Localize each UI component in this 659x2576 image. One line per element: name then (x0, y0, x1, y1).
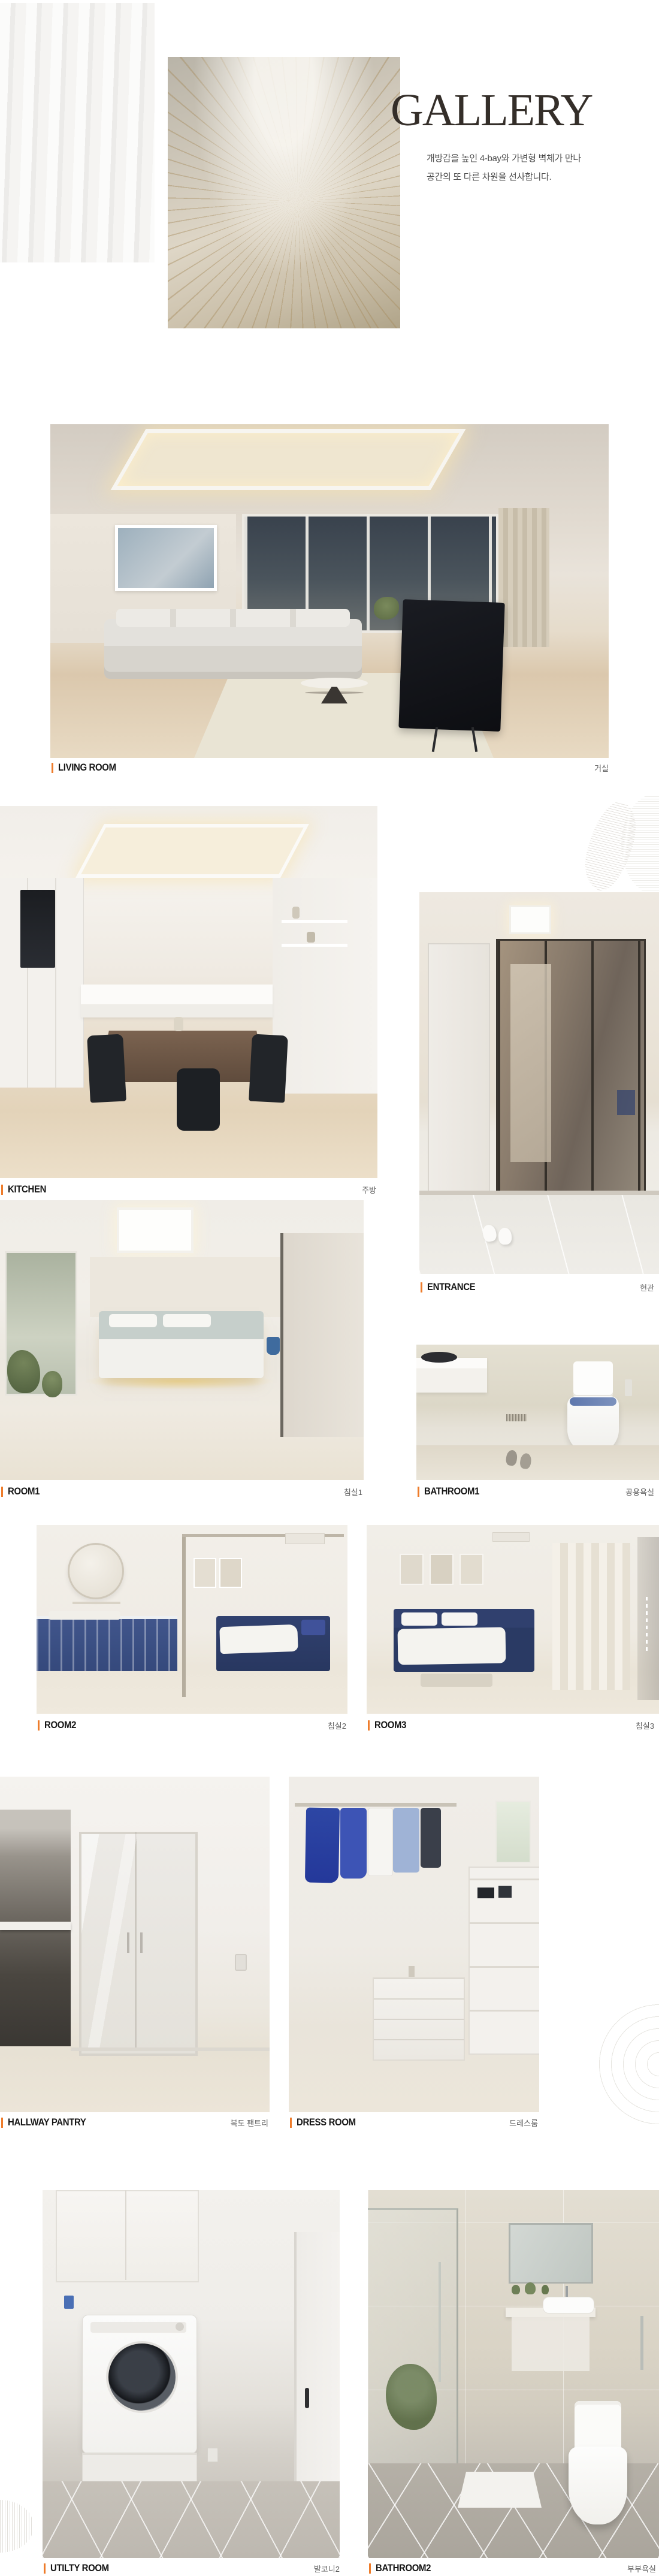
accessory-box2 (498, 1886, 512, 1898)
wall-shelf (72, 1602, 120, 1604)
recessed-ceiling-light (75, 824, 309, 878)
section-title-en: HALLWAY PANTRY (8, 2116, 86, 2128)
blue-wainscot (37, 1616, 177, 1671)
section-label-bathroom2: BATHROOM2 부부욕실 (369, 2562, 656, 2574)
section-title-en: DRESS ROOM (297, 2116, 356, 2128)
sink-basin (543, 2297, 594, 2314)
door-frame (294, 2232, 340, 2511)
recessed-ceiling-light (111, 429, 466, 490)
shelf-vase2 (307, 932, 315, 943)
hero-curtain-photo (0, 3, 155, 262)
table-vase (174, 1017, 183, 1031)
art-frame (115, 525, 217, 591)
photo-living-room[interactable] (50, 424, 609, 758)
cabinet-handle (127, 1932, 129, 1953)
threshold (419, 1191, 659, 1195)
light-switch (235, 1954, 247, 1971)
washer-knob (176, 2323, 184, 2331)
drain-grille (506, 1414, 527, 1421)
dining-chair-front (177, 1068, 220, 1131)
section-title-kr: 침실1 (344, 1486, 362, 1497)
leaf-shape (584, 797, 642, 895)
section-label-bathroom1: BATHROOM1 공용욕실 (418, 1485, 654, 1497)
perfume-bottle (409, 1966, 415, 1977)
toilet-bowl (569, 2447, 627, 2524)
sofa (104, 619, 362, 679)
blue-stool (267, 1337, 280, 1355)
ceiling-vent (492, 1532, 530, 1542)
section-label-entrance: ENTRANCE 현관 (421, 1281, 654, 1293)
label-accent-bar (421, 1282, 422, 1292)
shelf-plant (512, 2285, 520, 2294)
cabinet-divider (125, 2190, 126, 2280)
art-frame (194, 1558, 216, 1588)
section-label-room1: ROOM1 침실1 (1, 1485, 362, 1497)
label-accent-bar (1, 1185, 3, 1195)
curtain (552, 1543, 630, 1690)
photo-room2[interactable] (37, 1525, 347, 1714)
label-accent-bar (369, 2563, 371, 2574)
vanity-cabinet (512, 2317, 590, 2371)
curtain (498, 508, 549, 647)
washer-pedestal (82, 2453, 197, 2483)
bidet-remote (625, 1379, 632, 1396)
section-title-kr: 침실2 (328, 1720, 346, 1731)
label-accent-bar (1, 2118, 3, 2128)
photo-utility-room[interactable] (43, 2190, 340, 2558)
dark-garment (421, 1808, 441, 1868)
section-label-kitchen: KITCHEN 주방 (1, 1183, 376, 1195)
section-title-en: ROOM2 (44, 1719, 76, 1731)
photo-entrance[interactable] (419, 892, 659, 1274)
light-blue-shirt (393, 1808, 419, 1873)
bath-mat (458, 2472, 542, 2508)
section-title-en: ROOM3 (374, 1719, 406, 1731)
towel-bar (640, 2316, 643, 2370)
wall-shelf (282, 920, 347, 923)
floor (416, 1445, 659, 1480)
tile-floor (43, 2481, 340, 2558)
mirror-reflection-door (510, 964, 551, 1162)
gallery-page: { "accent_color": "#ee7c2b", "header": {… (0, 0, 659, 2576)
section-label-living-room: LIVING ROOM 거실 (52, 762, 609, 774)
recessed-ceiling-light (117, 1207, 194, 1253)
toilet-lid-blue-accent (570, 1397, 616, 1406)
clothes-rail (295, 1803, 457, 1807)
pillow2 (163, 1314, 211, 1327)
section-title-kr: 현관 (640, 1282, 654, 1293)
pillow2 (442, 1612, 477, 1626)
shower-bar (439, 2262, 441, 2382)
washer-door (106, 2341, 178, 2413)
photo-dress-room[interactable] (289, 1777, 539, 2112)
glass-frame-vertical (182, 1534, 186, 1697)
section-title-kr: 침실3 (636, 1720, 654, 1731)
tile-floor (419, 1195, 659, 1274)
blue-pillow (301, 1620, 325, 1635)
photo-room3[interactable] (367, 1525, 659, 1714)
label-accent-bar (290, 2118, 292, 2128)
section-title-kr: 복도 팬트리 (231, 2117, 268, 2128)
pillow (109, 1314, 157, 1327)
window (495, 1801, 531, 1863)
section-title-en: BATHROOM2 (376, 2562, 431, 2574)
leaf-shape2 (621, 796, 659, 895)
art-frame2 (219, 1558, 242, 1588)
deco-striped-leaves (584, 796, 659, 895)
aircon-vent (285, 1533, 325, 1544)
toilet-tank (573, 1361, 613, 1397)
white-duvet (219, 1624, 298, 1654)
glass-sheen (81, 1834, 191, 2049)
toilet-tank (575, 2401, 621, 2449)
white-duvet (397, 1627, 506, 1665)
mirror-reflection-bed (617, 1090, 635, 1115)
section-title-en: KITCHEN (8, 1183, 46, 1195)
art-frame (400, 1554, 424, 1585)
section-title-en: BATHROOM1 (424, 1485, 479, 1497)
hero-dandelion-photo (168, 57, 400, 328)
section-title-kr: 부부욕실 (627, 2563, 656, 2574)
upper-cabinet (56, 2190, 199, 2282)
ceiling-downlight (509, 905, 551, 934)
photo-bathroom2[interactable] (368, 2190, 659, 2558)
section-title-en: ROOM1 (8, 1485, 40, 1497)
blue-jacket (305, 1808, 340, 1883)
dining-chair-left (87, 1034, 126, 1103)
built-in-fridge (20, 890, 55, 968)
plant2 (42, 1371, 62, 1397)
label-accent-bar (368, 1720, 370, 1731)
glass-wall (637, 1537, 659, 1700)
section-label-dress-room: DRESS ROOM 드레스룸 (290, 2116, 538, 2128)
door-handle (305, 2388, 309, 2408)
deco-vertical-stripes (0, 2500, 33, 2553)
entry-door (428, 943, 490, 1203)
shelf-plant3 (542, 2285, 549, 2294)
section-label-utility-room: UTILTY ROOM 발코니2 (44, 2562, 340, 2574)
headboard-wall (90, 1257, 288, 1317)
label-accent-bar (44, 2563, 46, 2574)
shelf-plant2 (525, 2282, 536, 2294)
photo-hallway-pantry[interactable] (0, 1777, 270, 2112)
section-title-kr: 공용욕실 (625, 1486, 654, 1497)
section-title-kr: 발코니2 (314, 2563, 340, 2574)
pillow (401, 1612, 437, 1626)
photo-kitchen[interactable] (0, 806, 377, 1178)
island-counter (81, 985, 273, 1017)
circle-rings (590, 1995, 659, 2133)
sofa-cushions (116, 609, 350, 627)
art-frame3 (460, 1554, 483, 1585)
washer-control-panel (90, 2322, 186, 2333)
dining-chair-right (249, 1034, 288, 1103)
baseboard (71, 2047, 270, 2051)
art-frame2 (430, 1554, 454, 1585)
section-title-en: ENTRANCE (427, 1281, 475, 1293)
foot-bench (421, 1674, 492, 1687)
round-mirror (68, 1543, 124, 1599)
white-shirt (368, 1808, 393, 1876)
mirror (509, 2223, 593, 2284)
vertical-glass-lettering (646, 1596, 648, 1651)
faucet (566, 2286, 568, 2298)
shelf-vase (292, 907, 300, 919)
counter-edge (0, 1922, 71, 1930)
glass-partition (280, 1233, 364, 1437)
tv-screen (398, 599, 504, 732)
vanity-counter (416, 1358, 487, 1393)
page-title: GALLERY (391, 87, 592, 133)
deco-concentric-circles (590, 1995, 659, 2133)
island-drawers (373, 1977, 465, 2061)
section-title-kr: 거실 (594, 762, 609, 774)
section-title-en: UTILTY ROOM (50, 2562, 109, 2574)
section-label-room3: ROOM3 침실3 (368, 1719, 654, 1731)
section-label-room2: ROOM2 침실2 (38, 1719, 346, 1731)
section-title-en: LIVING ROOM (58, 762, 116, 774)
bench-cushion (49, 1611, 120, 1620)
section-title-kr: 드레스룸 (509, 2117, 538, 2128)
label-accent-bar (1, 1487, 3, 1497)
sink-bowl (421, 1352, 457, 1363)
label-accent-bar (38, 1720, 40, 1731)
page-subtitle-line2: 공간의 또 다른 차원을 선사합니다. (427, 173, 642, 182)
photo-room1[interactable] (0, 1200, 364, 1480)
photo-bathroom1[interactable] (416, 1345, 659, 1480)
section-title-kr: 주방 (362, 1184, 376, 1195)
cabinet-handle2 (140, 1932, 143, 1953)
section-label-hallway-pantry: HALLWAY PANTRY 복도 팬트리 (1, 2116, 268, 2128)
blue-jacket2 (340, 1808, 367, 1879)
right-wall (273, 878, 377, 1094)
label-accent-bar (52, 763, 53, 773)
accessory-box (477, 1888, 494, 1898)
label-accent-bar (418, 1487, 419, 1497)
wall-outlet (207, 2448, 218, 2462)
blue-wall-tag (64, 2296, 74, 2309)
page-subtitle-line1: 개방감을 높인 4-bay와 가변형 벽체가 만나 (427, 154, 642, 163)
plant (374, 597, 399, 620)
